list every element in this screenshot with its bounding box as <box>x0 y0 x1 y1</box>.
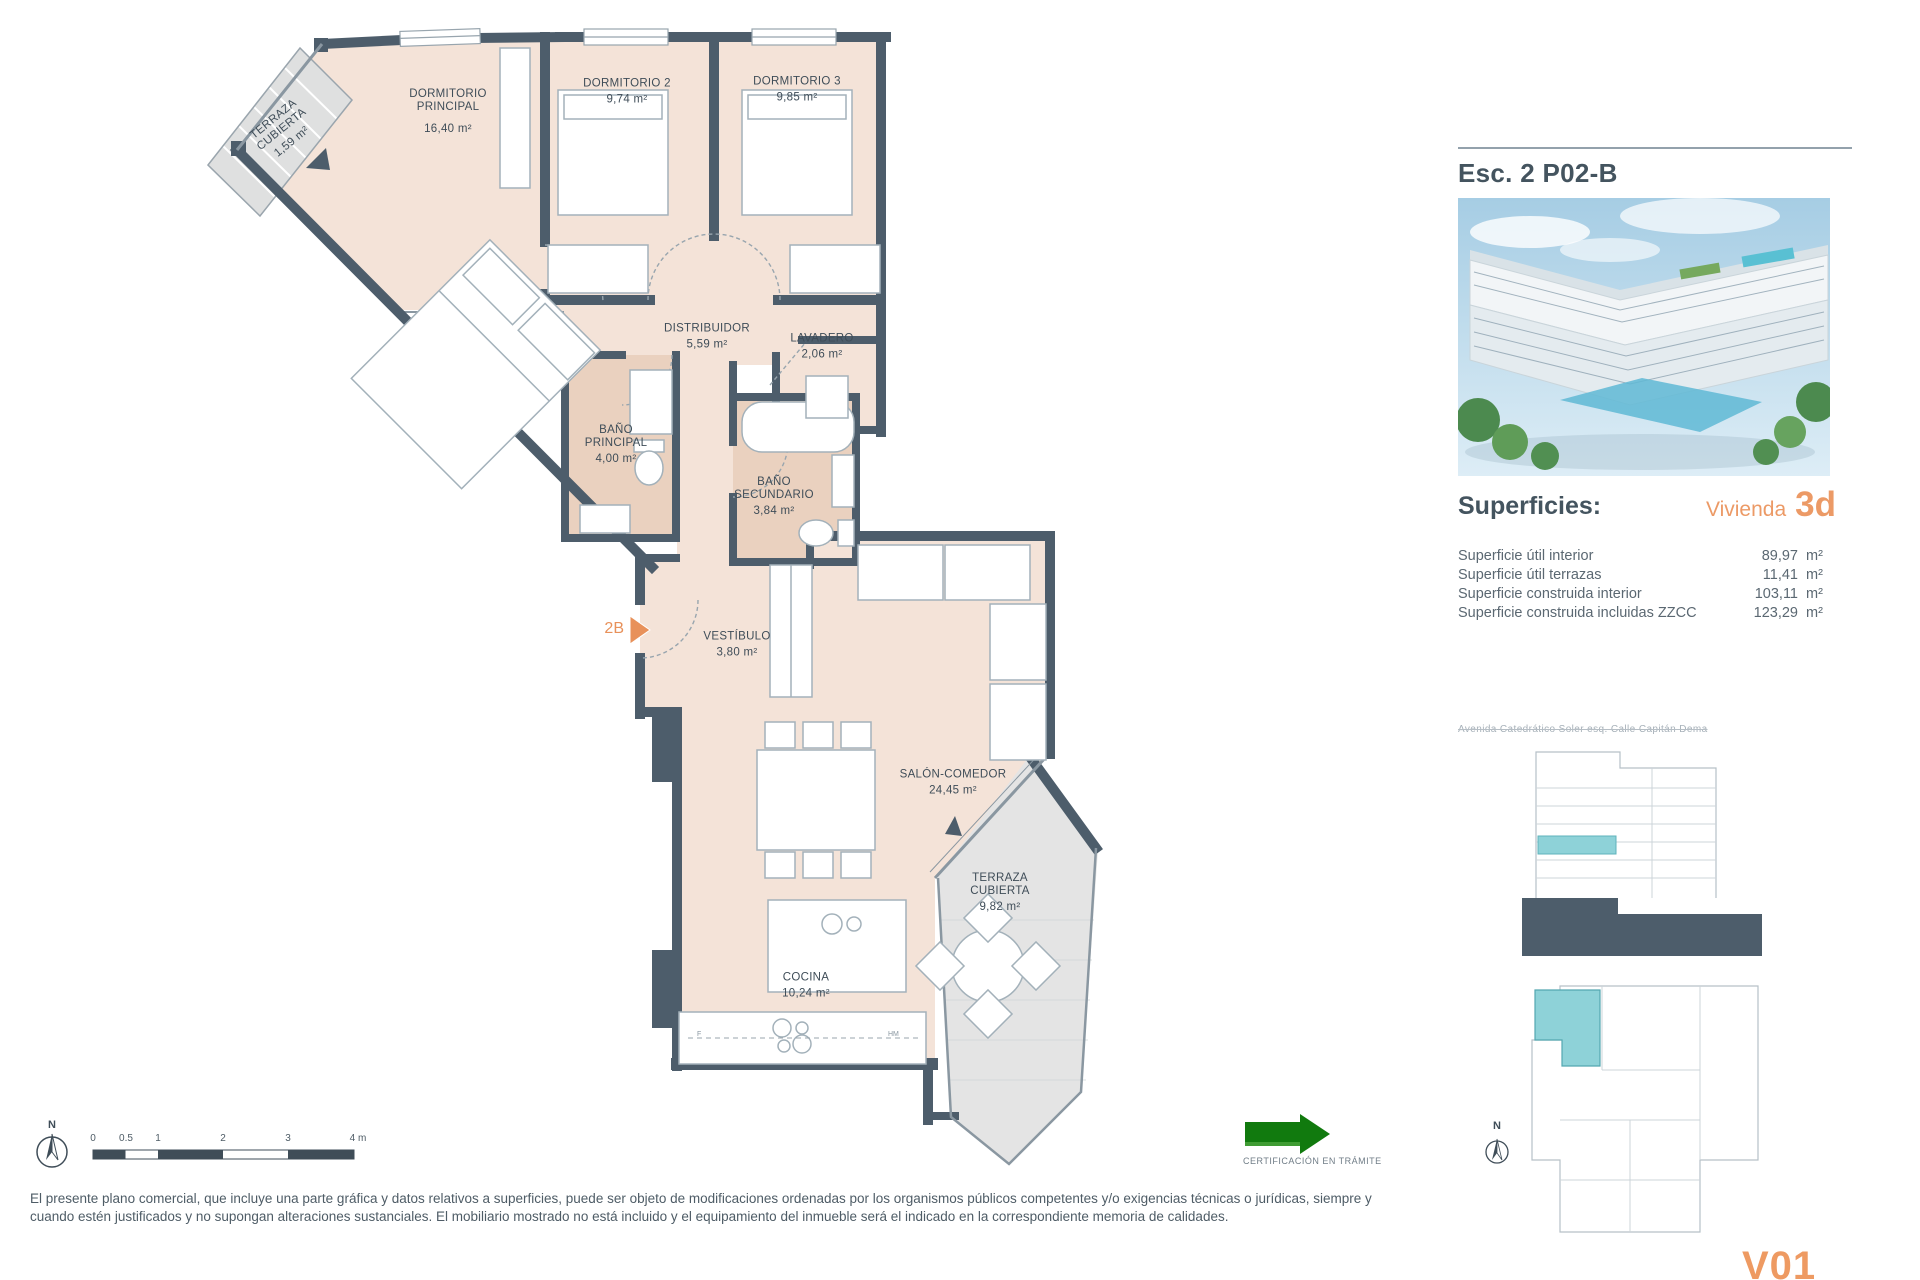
room-name: COCINA <box>756 972 856 985</box>
room-name: LAVADERO <box>772 333 872 346</box>
certification-label: CERTIFICACIÓN EN TRÁMITE <box>1243 1156 1413 1166</box>
superficie-label: Superficie construida incluidas ZZCC <box>1458 604 1742 623</box>
wing-wardrobe <box>500 48 530 188</box>
room-label-terraza-cubierta: TERRAZA CUBIERTA 9,82 m² <box>957 872 1043 914</box>
disclaimer-line-2: cuando estén justificados y no supongan … <box>30 1208 1400 1226</box>
superficies-heading: Superficies: <box>1458 492 1601 521</box>
sofa <box>858 545 943 600</box>
brochure-page: TERRAZA CUBIERTA 1,59 m² DORMITORIO PRIN… <box>0 0 1920 1280</box>
room-label-bano-principal: BAÑO PRINCIPAL 4,00 m² <box>573 424 659 466</box>
superficie-row: Superficie útil terrazas 11,41 m² <box>1458 566 1836 585</box>
superficie-row: Superficie construida interior 103,11 m² <box>1458 585 1836 604</box>
scale-tick: 3 <box>285 1133 291 1144</box>
section-elevation <box>1522 752 1762 956</box>
room-label-lavadero: LAVADERO 2,06 m² <box>772 333 872 362</box>
appliance-code-f: F <box>697 1031 701 1038</box>
vivienda-value: 3d <box>1795 490 1836 520</box>
superficie-unit: m² <box>1798 585 1836 604</box>
room-label-dormitorio-principal: DORMITORIO PRINCIPAL 16,40 m² <box>392 88 504 136</box>
wardrobe-2 <box>548 245 648 293</box>
superficie-value: 89,97 <box>1742 547 1798 566</box>
superficie-label: Superficie construida interior <box>1458 585 1742 604</box>
room-area: 10,24 m² <box>756 988 856 1001</box>
windows <box>400 29 836 47</box>
room-area: 24,45 m² <box>873 785 1033 798</box>
room-name: DORMITORIO 2 <box>557 78 697 91</box>
scale-tick: 4 m <box>350 1133 367 1144</box>
superficie-unit: m² <box>1798 547 1836 566</box>
room-label-dormitorio-3: DORMITORIO 3 9,85 m² <box>727 76 867 105</box>
room-label-bano-secundario: BAÑO SECUNDARIO 3,84 m² <box>719 476 829 518</box>
certification-arrow <box>1245 1114 1330 1154</box>
room-area: 9,85 m² <box>727 92 867 105</box>
room-label-cocina: COCINA 10,24 m² <box>756 972 856 1001</box>
room-area: 16,40 m² <box>392 123 504 136</box>
room-name: DORMITORIO PRINCIPAL <box>392 88 504 114</box>
unit-title: Esc. 2 P02-B <box>1458 158 1618 189</box>
room-name: DISTRIBUIDOR <box>637 323 777 336</box>
scale-tick: 0 <box>90 1133 96 1144</box>
superficie-value: 103,11 <box>1742 585 1798 604</box>
superficie-row: Superficie útil interior 89,97 m² <box>1458 547 1836 566</box>
room-area: 3,84 m² <box>719 505 829 518</box>
floor-plan <box>0 0 1920 1280</box>
dining-table <box>757 750 875 850</box>
room-label-dormitorio-2: DORMITORIO 2 9,74 m² <box>557 78 697 107</box>
washer <box>806 376 848 418</box>
superficies-table: Superficie útil interior 89,97 m² Superf… <box>1458 547 1836 623</box>
sink-2 <box>832 455 854 507</box>
mini-north-label: N <box>1493 1120 1501 1132</box>
room-area: 9,82 m² <box>957 901 1043 914</box>
superficie-value: 11,41 <box>1742 566 1798 585</box>
superficie-row: Superficie construida incluidas ZZCC 123… <box>1458 604 1836 623</box>
room-name: SALÓN-COMEDOR <box>873 769 1033 782</box>
superficie-label: Superficie útil terrazas <box>1458 566 1742 585</box>
room-area: 3,80 m² <box>682 647 792 660</box>
superficie-unit: m² <box>1798 566 1836 585</box>
address-line: Avenida Catedrático Soler esq. Calle Cap… <box>1458 724 1838 735</box>
entry-unit-label: 2B <box>578 620 624 638</box>
vivienda-badge: Vivienda 3d <box>1636 490 1836 522</box>
section-highlight-floor <box>1538 836 1616 854</box>
disclaimer: El presente plano comercial, que incluye… <box>30 1190 1400 1225</box>
room-label-vestibulo: VESTÍBULO 3,80 m² <box>682 631 792 660</box>
room-area: 2,06 m² <box>772 349 872 362</box>
room-name: VESTÍBULO <box>682 631 792 644</box>
superficie-value: 123,29 <box>1742 604 1798 623</box>
room-label-distribuidor: DISTRIBUIDOR 5,59 m² <box>637 323 777 352</box>
superficie-label: Superficie útil interior <box>1458 547 1742 566</box>
building-render <box>1456 198 1836 476</box>
room-area: 9,74 m² <box>557 94 697 107</box>
room-area: 5,59 m² <box>637 339 777 352</box>
plate-plan <box>1486 986 1758 1232</box>
toilet-2 <box>799 520 833 546</box>
wardrobe-3 <box>790 245 880 293</box>
north-label: N <box>48 1119 56 1131</box>
vivienda-label: Vivienda <box>1706 498 1786 522</box>
scale-tick: 1 <box>155 1133 161 1144</box>
scale-bar <box>37 1134 354 1167</box>
scale-tick: 0.5 <box>119 1133 133 1144</box>
room-name: BAÑO PRINCIPAL <box>573 424 659 450</box>
room-area: 4,00 m² <box>573 453 659 466</box>
room-name: BAÑO SECUNDARIO <box>719 476 829 502</box>
superficie-unit: m² <box>1798 604 1836 623</box>
disclaimer-line-1: El presente plano comercial, que incluye… <box>30 1190 1400 1208</box>
scale-tick: 2 <box>220 1133 226 1144</box>
appliance-code-hm: HM <box>888 1031 899 1038</box>
room-name: DORMITORIO 3 <box>727 76 867 89</box>
room-label-salon-comedor: SALÓN-COMEDOR 24,45 m² <box>873 769 1033 798</box>
room-name: TERRAZA CUBIERTA <box>957 872 1043 898</box>
version-label: V01 <box>1742 1244 1816 1280</box>
sink-1 <box>580 505 630 533</box>
